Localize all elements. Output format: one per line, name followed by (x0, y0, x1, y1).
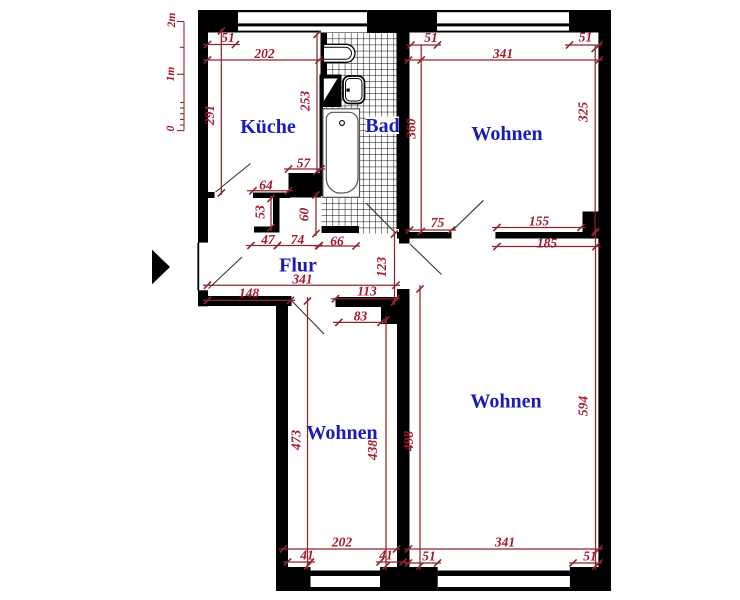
svg-text:51: 51 (422, 549, 436, 564)
svg-text:57: 57 (297, 156, 312, 171)
svg-text:Küche: Küche (240, 116, 296, 138)
svg-text:498: 498 (401, 431, 416, 453)
svg-text:291: 291 (202, 105, 217, 126)
svg-text:47: 47 (260, 232, 276, 247)
svg-text:Wohnen: Wohnen (306, 422, 377, 444)
svg-text:1m: 1m (165, 67, 177, 82)
svg-text:185: 185 (537, 236, 558, 251)
svg-text:341: 341 (494, 535, 515, 550)
svg-text:41: 41 (299, 548, 314, 563)
svg-text:Flur: Flur (279, 255, 317, 277)
svg-text:Wohnen: Wohnen (470, 391, 541, 413)
svg-text:473: 473 (289, 430, 304, 452)
svg-text:325: 325 (576, 102, 591, 124)
svg-text:51: 51 (424, 30, 438, 45)
svg-text:113: 113 (357, 284, 377, 299)
svg-text:74: 74 (291, 232, 305, 247)
svg-text:202: 202 (331, 535, 353, 550)
svg-text:202: 202 (253, 46, 275, 61)
svg-text:66: 66 (330, 234, 344, 249)
svg-text:Bad: Bad (365, 115, 399, 137)
svg-text:51: 51 (583, 549, 597, 564)
svg-text:64: 64 (259, 178, 273, 193)
svg-text:75: 75 (431, 215, 445, 230)
svg-text:53: 53 (253, 205, 268, 219)
svg-text:123: 123 (374, 257, 389, 278)
svg-text:253: 253 (298, 91, 313, 113)
svg-text:155: 155 (529, 214, 550, 229)
svg-text:594: 594 (576, 396, 591, 417)
svg-text:360: 360 (404, 118, 419, 140)
svg-text:51: 51 (221, 30, 235, 45)
svg-text:0: 0 (165, 125, 177, 131)
svg-text:2m: 2m (166, 13, 178, 29)
svg-text:51: 51 (579, 30, 593, 45)
svg-text:41: 41 (378, 548, 393, 563)
svg-text:341: 341 (492, 46, 513, 61)
svg-text:83: 83 (354, 309, 368, 324)
svg-text:60: 60 (297, 208, 312, 222)
svg-text:148: 148 (239, 286, 260, 301)
svg-text:Wohnen: Wohnen (471, 123, 542, 145)
